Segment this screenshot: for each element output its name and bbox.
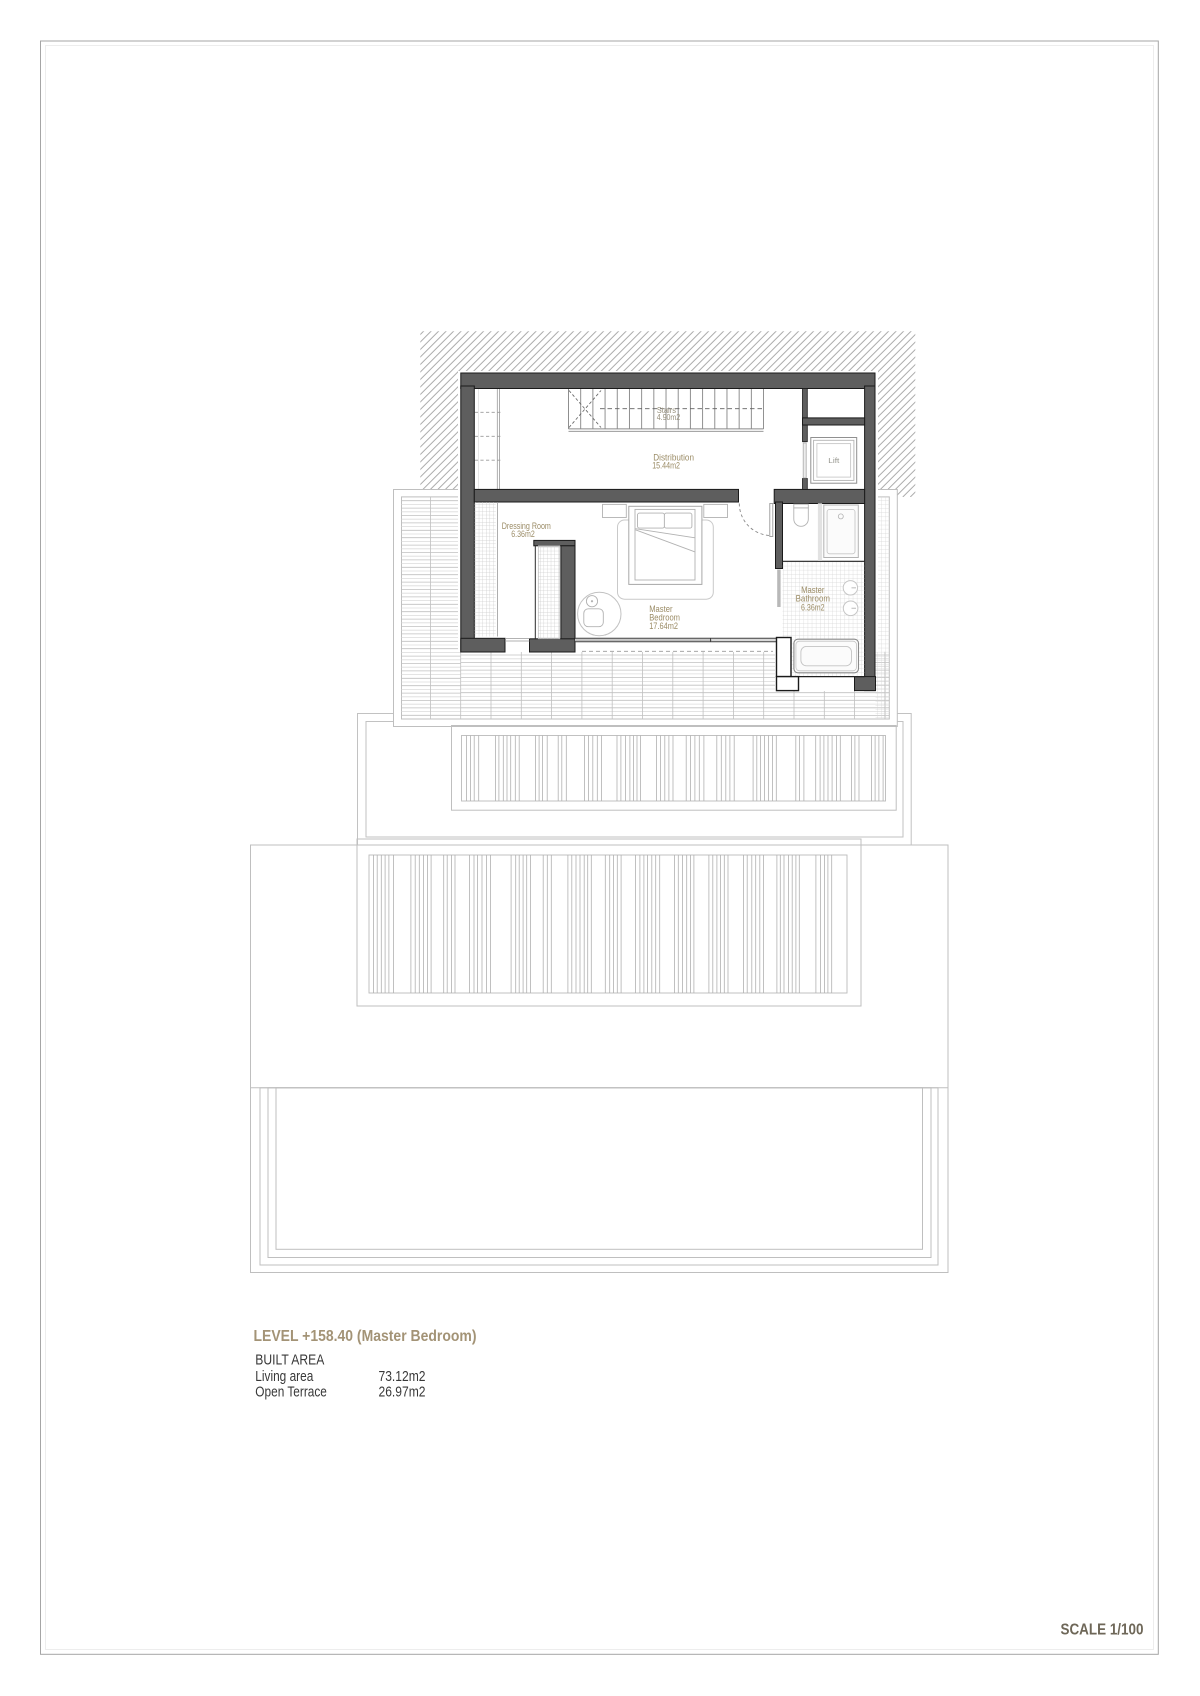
svg-text:6.36m2: 6.36m2 xyxy=(511,529,535,539)
svg-text:15.44m2: 15.44m2 xyxy=(652,460,680,470)
svg-text:6.36m2: 6.36m2 xyxy=(801,602,825,612)
svg-text:4.90m2: 4.90m2 xyxy=(657,413,681,422)
svg-text:Lift: Lift xyxy=(828,456,839,465)
svg-text:LEVEL +158.40 (Master Bedroom): LEVEL +158.40 (Master Bedroom) xyxy=(254,1328,477,1345)
svg-text:Open Terrace: Open Terrace xyxy=(255,1383,327,1400)
svg-text:17.64m2: 17.64m2 xyxy=(649,621,678,631)
svg-text:SCALE 1/100: SCALE 1/100 xyxy=(1061,1622,1144,1639)
svg-text:26.97m2: 26.97m2 xyxy=(379,1383,426,1400)
svg-text:BUILT AREA: BUILT AREA xyxy=(255,1352,324,1369)
